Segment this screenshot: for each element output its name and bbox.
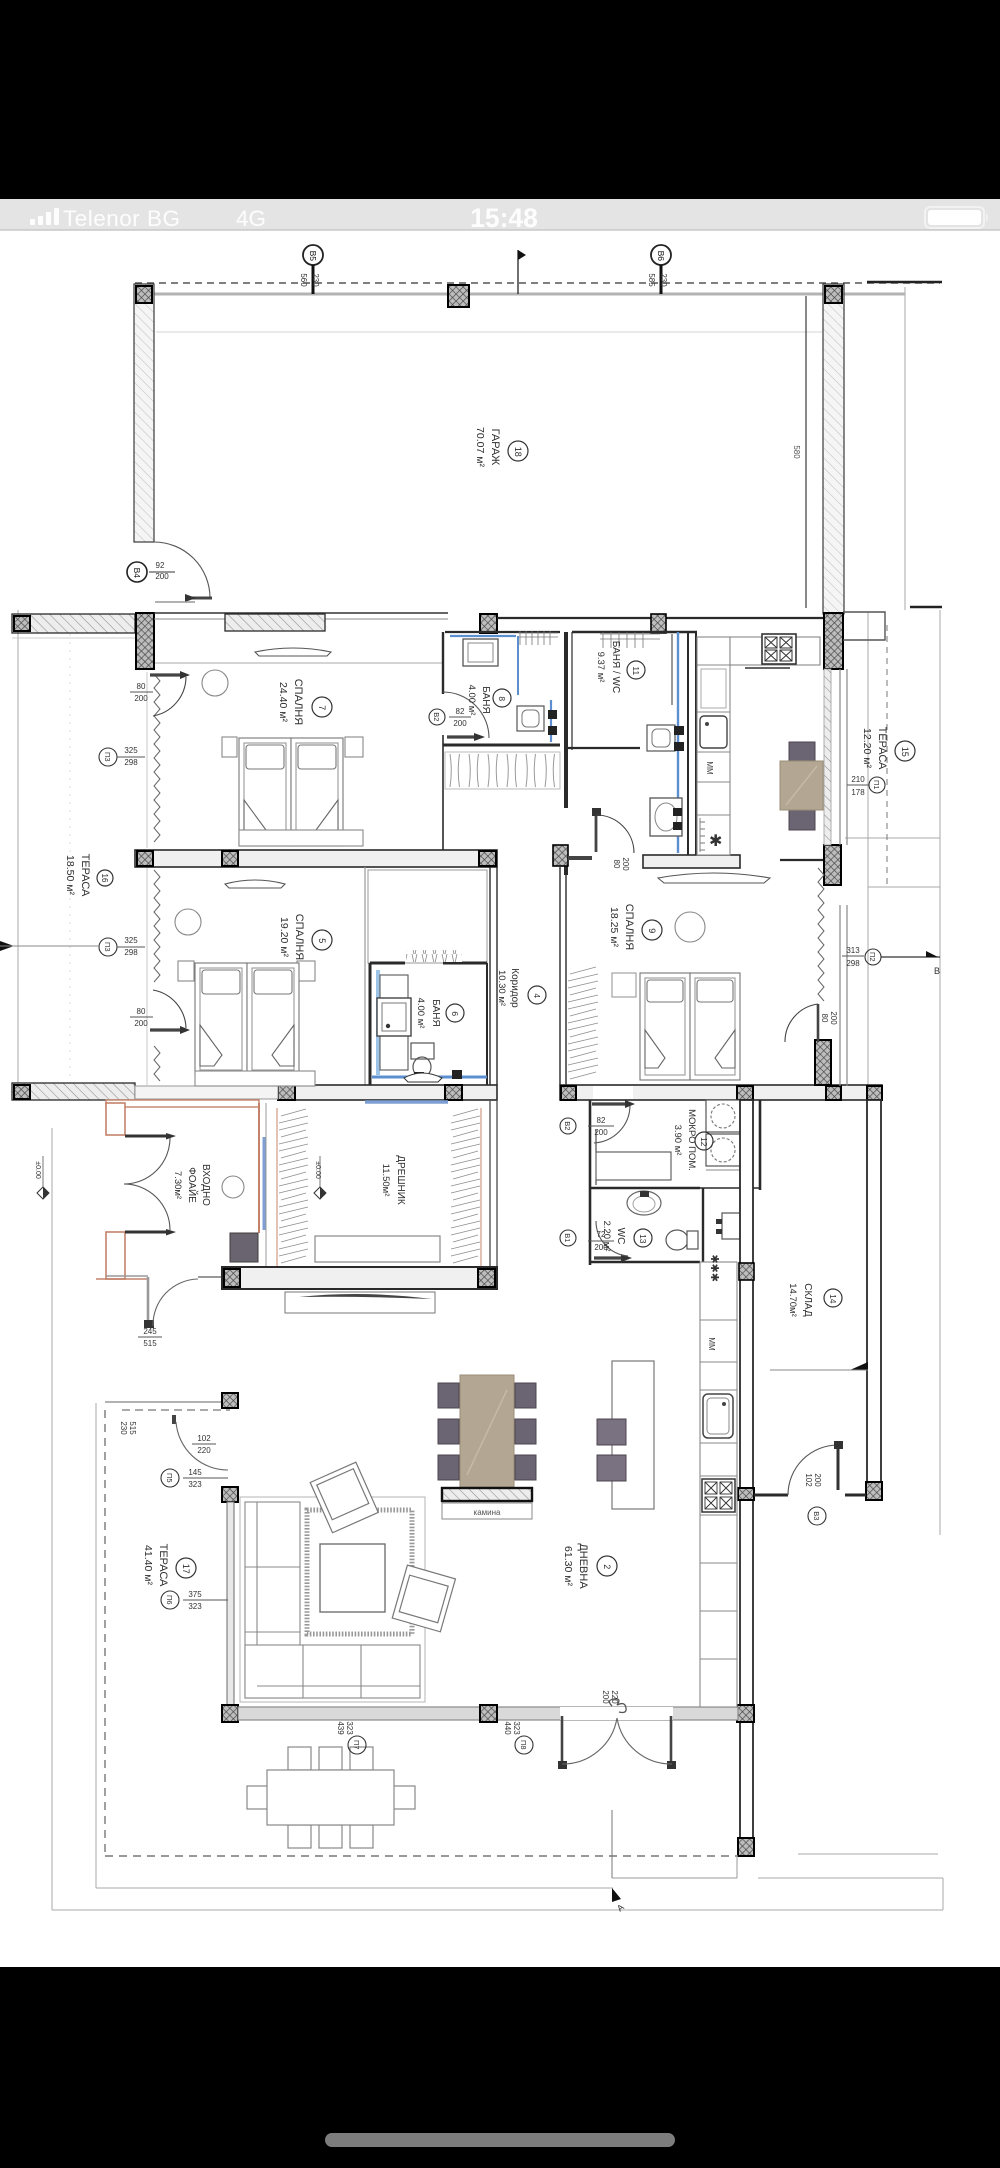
svg-text:ФОАЙЕ: ФОАЙЕ xyxy=(186,1167,199,1203)
svg-text:П5: П5 xyxy=(165,1473,174,1483)
svg-text:11: 11 xyxy=(631,666,641,675)
svg-text:80: 80 xyxy=(137,682,146,691)
svg-text:БАНЯ: БАНЯ xyxy=(480,686,491,713)
svg-text:В4: В4 xyxy=(132,568,142,579)
svg-text:24.40 м²: 24.40 м² xyxy=(277,682,289,722)
svg-text:15: 15 xyxy=(900,747,910,757)
svg-text:298: 298 xyxy=(846,959,860,968)
svg-text:323: 323 xyxy=(345,1721,354,1735)
svg-text:323: 323 xyxy=(188,1602,202,1611)
svg-text:П2: П2 xyxy=(868,952,877,962)
svg-text:298: 298 xyxy=(124,758,138,767)
svg-text:10.30 м²: 10.30 м² xyxy=(496,970,507,1006)
svg-text:5: 5 xyxy=(317,938,327,943)
svg-text:СКЛАД: СКЛАД xyxy=(802,1283,813,1317)
svg-text:П1: П1 xyxy=(872,780,881,790)
svg-text:18.50 м²: 18.50 м² xyxy=(64,855,76,895)
svg-text:✱: ✱ xyxy=(709,833,722,850)
svg-text:14: 14 xyxy=(828,1294,838,1304)
svg-text:82: 82 xyxy=(597,1116,606,1125)
svg-text:ДНЕВНА: ДНЕВНА xyxy=(577,1543,589,1589)
svg-text:В2: В2 xyxy=(432,712,441,721)
svg-text:6: 6 xyxy=(450,1011,460,1016)
svg-text:14.70м²: 14.70м² xyxy=(787,1283,798,1316)
svg-text:Коридор: Коридор xyxy=(509,968,520,1008)
svg-text:61.30 м²: 61.30 м² xyxy=(562,1546,574,1586)
svg-text:580: 580 xyxy=(792,445,801,459)
svg-text:323: 323 xyxy=(188,1480,202,1489)
svg-text:80: 80 xyxy=(137,1007,146,1016)
svg-text:П3: П3 xyxy=(103,942,112,952)
svg-text:375: 375 xyxy=(188,1590,202,1599)
svg-text:325: 325 xyxy=(124,936,138,945)
svg-text:145: 145 xyxy=(188,1468,202,1477)
svg-text:200: 200 xyxy=(155,572,169,581)
svg-text:298: 298 xyxy=(124,948,138,957)
svg-text:17: 17 xyxy=(181,1564,191,1574)
svg-text:П7: П7 xyxy=(352,1740,361,1750)
svg-text:4.00 м²: 4.00 м² xyxy=(466,685,477,716)
svg-text:200: 200 xyxy=(134,1019,148,1028)
svg-text:В1: В1 xyxy=(563,1233,572,1242)
svg-text:П8: П8 xyxy=(519,1740,528,1750)
svg-text:В5: В5 xyxy=(308,251,318,262)
svg-text:313: 313 xyxy=(846,946,860,955)
svg-text:В3: В3 xyxy=(812,1511,821,1520)
svg-text:3.90 м²: 3.90 м² xyxy=(672,1125,683,1156)
svg-text:515: 515 xyxy=(128,1421,137,1435)
svg-text:560: 560 xyxy=(299,273,308,287)
svg-text:СПАЛНЯ: СПАЛНЯ xyxy=(293,914,305,961)
svg-text:80: 80 xyxy=(820,1014,829,1023)
svg-text:82: 82 xyxy=(456,707,465,716)
svg-text:18: 18 xyxy=(513,447,523,457)
svg-text:ДРЕШНИК: ДРЕШНИК xyxy=(395,1155,406,1205)
svg-text:220: 220 xyxy=(610,1690,619,1704)
svg-text:8: 8 xyxy=(497,696,507,701)
svg-text:19.20 м²: 19.20 м² xyxy=(278,917,290,957)
svg-text:WC: WC xyxy=(615,1228,626,1245)
svg-text:В2: В2 xyxy=(563,1121,572,1130)
svg-text:41.40 м²: 41.40 м² xyxy=(142,1545,154,1585)
svg-text:585: 585 xyxy=(647,273,656,287)
svg-text:220: 220 xyxy=(197,1446,211,1455)
svg-text:2: 2 xyxy=(602,1564,612,1569)
svg-text:В6: В6 xyxy=(656,251,666,262)
svg-text:ТЕРАСА: ТЕРАСА xyxy=(876,727,888,770)
svg-text:72: 72 xyxy=(597,1230,606,1239)
svg-text:200: 200 xyxy=(829,1011,838,1025)
svg-text:БАНЯ: БАНЯ xyxy=(430,999,441,1026)
svg-text:12.20 м²: 12.20 м² xyxy=(861,728,873,768)
svg-text:102: 102 xyxy=(804,1473,813,1487)
svg-text:200: 200 xyxy=(621,857,630,871)
svg-text:12: 12 xyxy=(699,1137,709,1147)
svg-text:230: 230 xyxy=(119,1421,128,1435)
svg-text:П3: П3 xyxy=(103,752,112,762)
svg-text:70.07 м²: 70.07 м² xyxy=(474,427,486,467)
svg-text:ВХОДНО: ВХОДНО xyxy=(200,1164,211,1206)
svg-text:210: 210 xyxy=(851,775,865,784)
svg-text:200: 200 xyxy=(134,694,148,703)
svg-text:92: 92 xyxy=(156,561,165,570)
svg-text:ТЕРАСА: ТЕРАСА xyxy=(79,854,91,897)
svg-text:9: 9 xyxy=(647,928,657,933)
svg-text:7: 7 xyxy=(317,705,327,710)
svg-text:200: 200 xyxy=(594,1128,608,1137)
svg-text:MM: MM xyxy=(705,761,714,775)
svg-text:П6: П6 xyxy=(165,1595,174,1605)
svg-text:230: 230 xyxy=(311,273,320,287)
svg-text:ТЕРАСА: ТЕРАСА xyxy=(157,1544,169,1587)
svg-text:СПАЛНЯ: СПАЛНЯ xyxy=(292,679,304,726)
svg-text:4G: 4G xyxy=(236,206,266,231)
svg-text:178: 178 xyxy=(851,788,865,797)
svg-text:102: 102 xyxy=(197,1434,211,1443)
svg-text:15:48: 15:48 xyxy=(470,203,538,233)
svg-text:11.50м²: 11.50м² xyxy=(380,1164,391,1197)
svg-text:Telenor BG: Telenor BG xyxy=(63,206,181,231)
svg-text:СПАЛНЯ: СПАЛНЯ xyxy=(623,904,635,951)
svg-text:440: 440 xyxy=(503,1721,512,1735)
svg-text:200: 200 xyxy=(601,1690,610,1704)
svg-text:439: 439 xyxy=(336,1721,345,1735)
svg-text:±0.00: ±0.00 xyxy=(34,1161,41,1179)
svg-text:323: 323 xyxy=(512,1721,521,1735)
svg-text:230: 230 xyxy=(659,273,668,287)
svg-text:9.37 м²: 9.37 м² xyxy=(595,652,606,683)
svg-text:200: 200 xyxy=(594,1243,608,1252)
svg-text:камина: камина xyxy=(474,1508,502,1517)
svg-text:ГАРАЖ: ГАРАЖ xyxy=(489,429,501,466)
svg-text:325: 325 xyxy=(124,746,138,755)
svg-text:515: 515 xyxy=(143,1339,157,1348)
svg-text:18.25 м²: 18.25 м² xyxy=(608,907,620,947)
svg-text:16: 16 xyxy=(100,874,109,883)
svg-text:80: 80 xyxy=(612,860,621,869)
svg-text:MM: MM xyxy=(707,1337,716,1351)
svg-text:4.00 м²: 4.00 м² xyxy=(415,998,426,1029)
svg-text:✱✱✱: ✱✱✱ xyxy=(708,1254,720,1282)
svg-text:245: 245 xyxy=(143,1327,157,1336)
svg-text:200: 200 xyxy=(813,1473,822,1487)
svg-text:БАНЯ / WC: БАНЯ / WC xyxy=(610,641,621,693)
svg-text:13: 13 xyxy=(638,1234,648,1244)
svg-text:7.30м²: 7.30м² xyxy=(172,1171,183,1199)
svg-text:4: 4 xyxy=(532,993,542,998)
svg-text:200: 200 xyxy=(453,719,467,728)
svg-text:В: В xyxy=(934,966,940,976)
